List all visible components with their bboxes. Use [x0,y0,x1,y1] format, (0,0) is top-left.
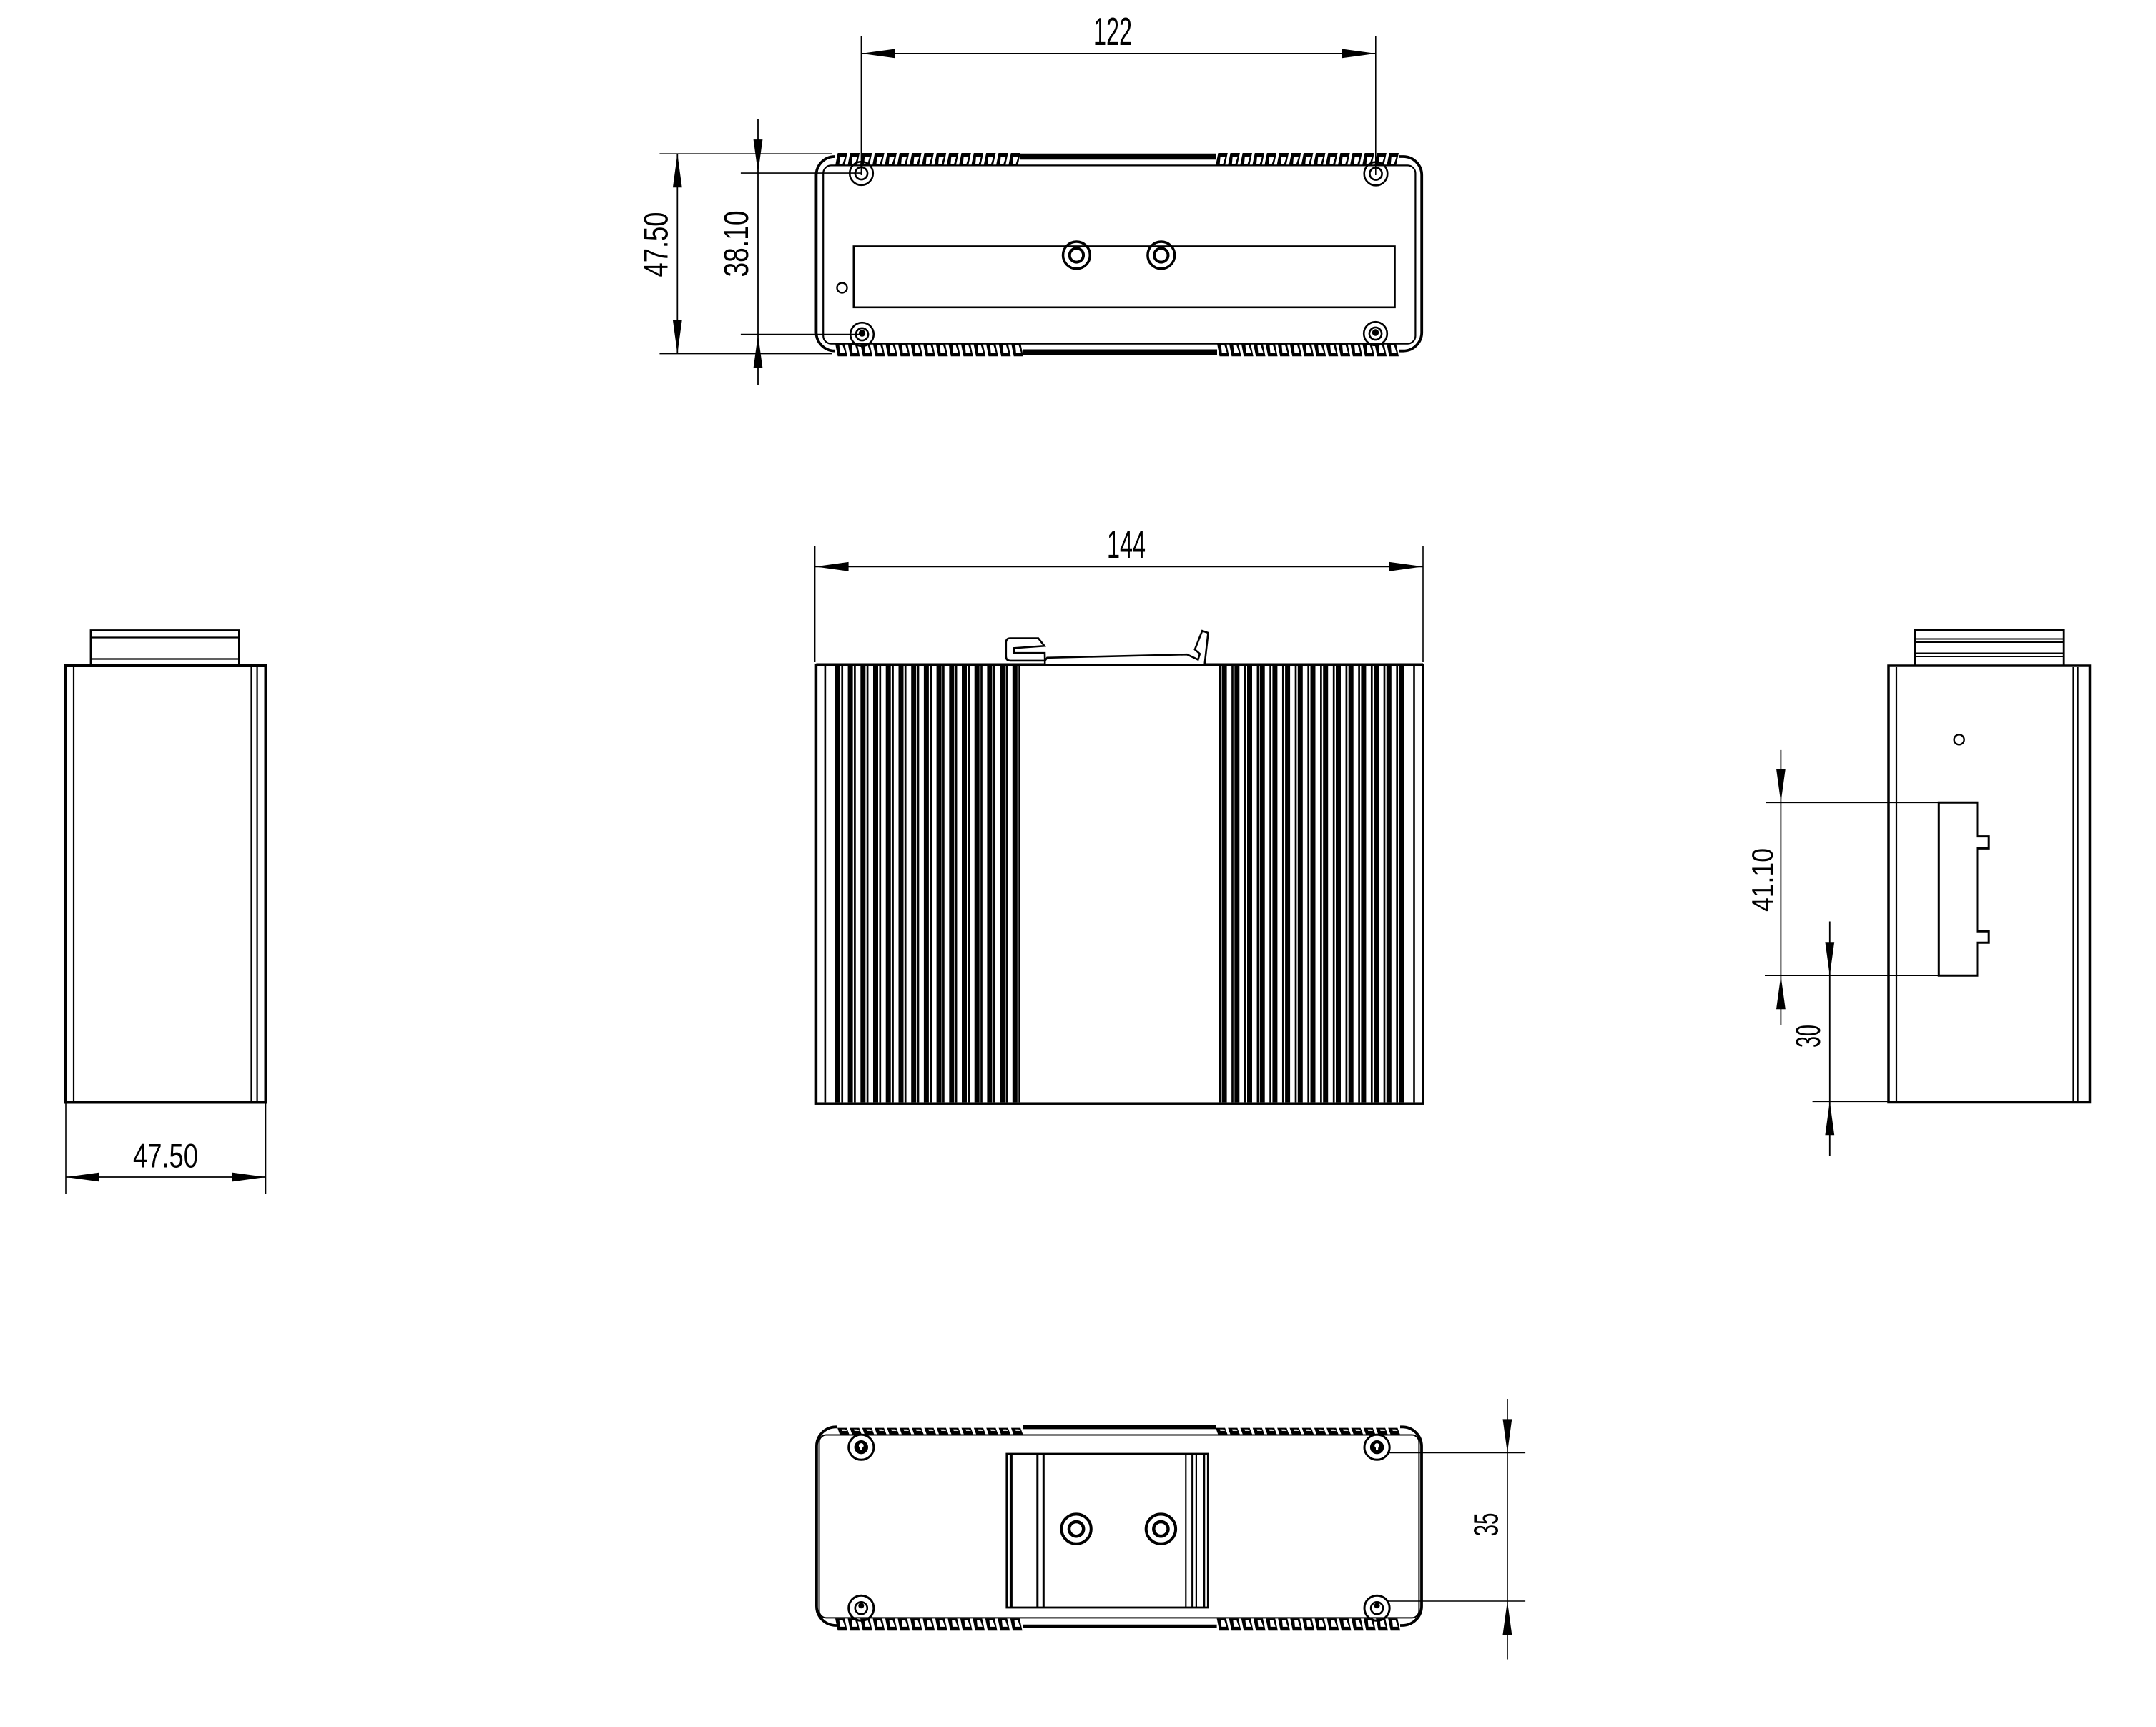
svg-text:38.10: 38.10 [718,211,756,277]
svg-text:144: 144 [1107,522,1146,566]
svg-text:30: 30 [1790,1025,1828,1048]
svg-text:122: 122 [1093,9,1132,54]
svg-text:41.10: 41.10 [1746,848,1779,912]
svg-text:47.50: 47.50 [133,1137,198,1175]
svg-text:47.50: 47.50 [636,212,674,277]
svg-text:35: 35 [1468,1513,1506,1537]
